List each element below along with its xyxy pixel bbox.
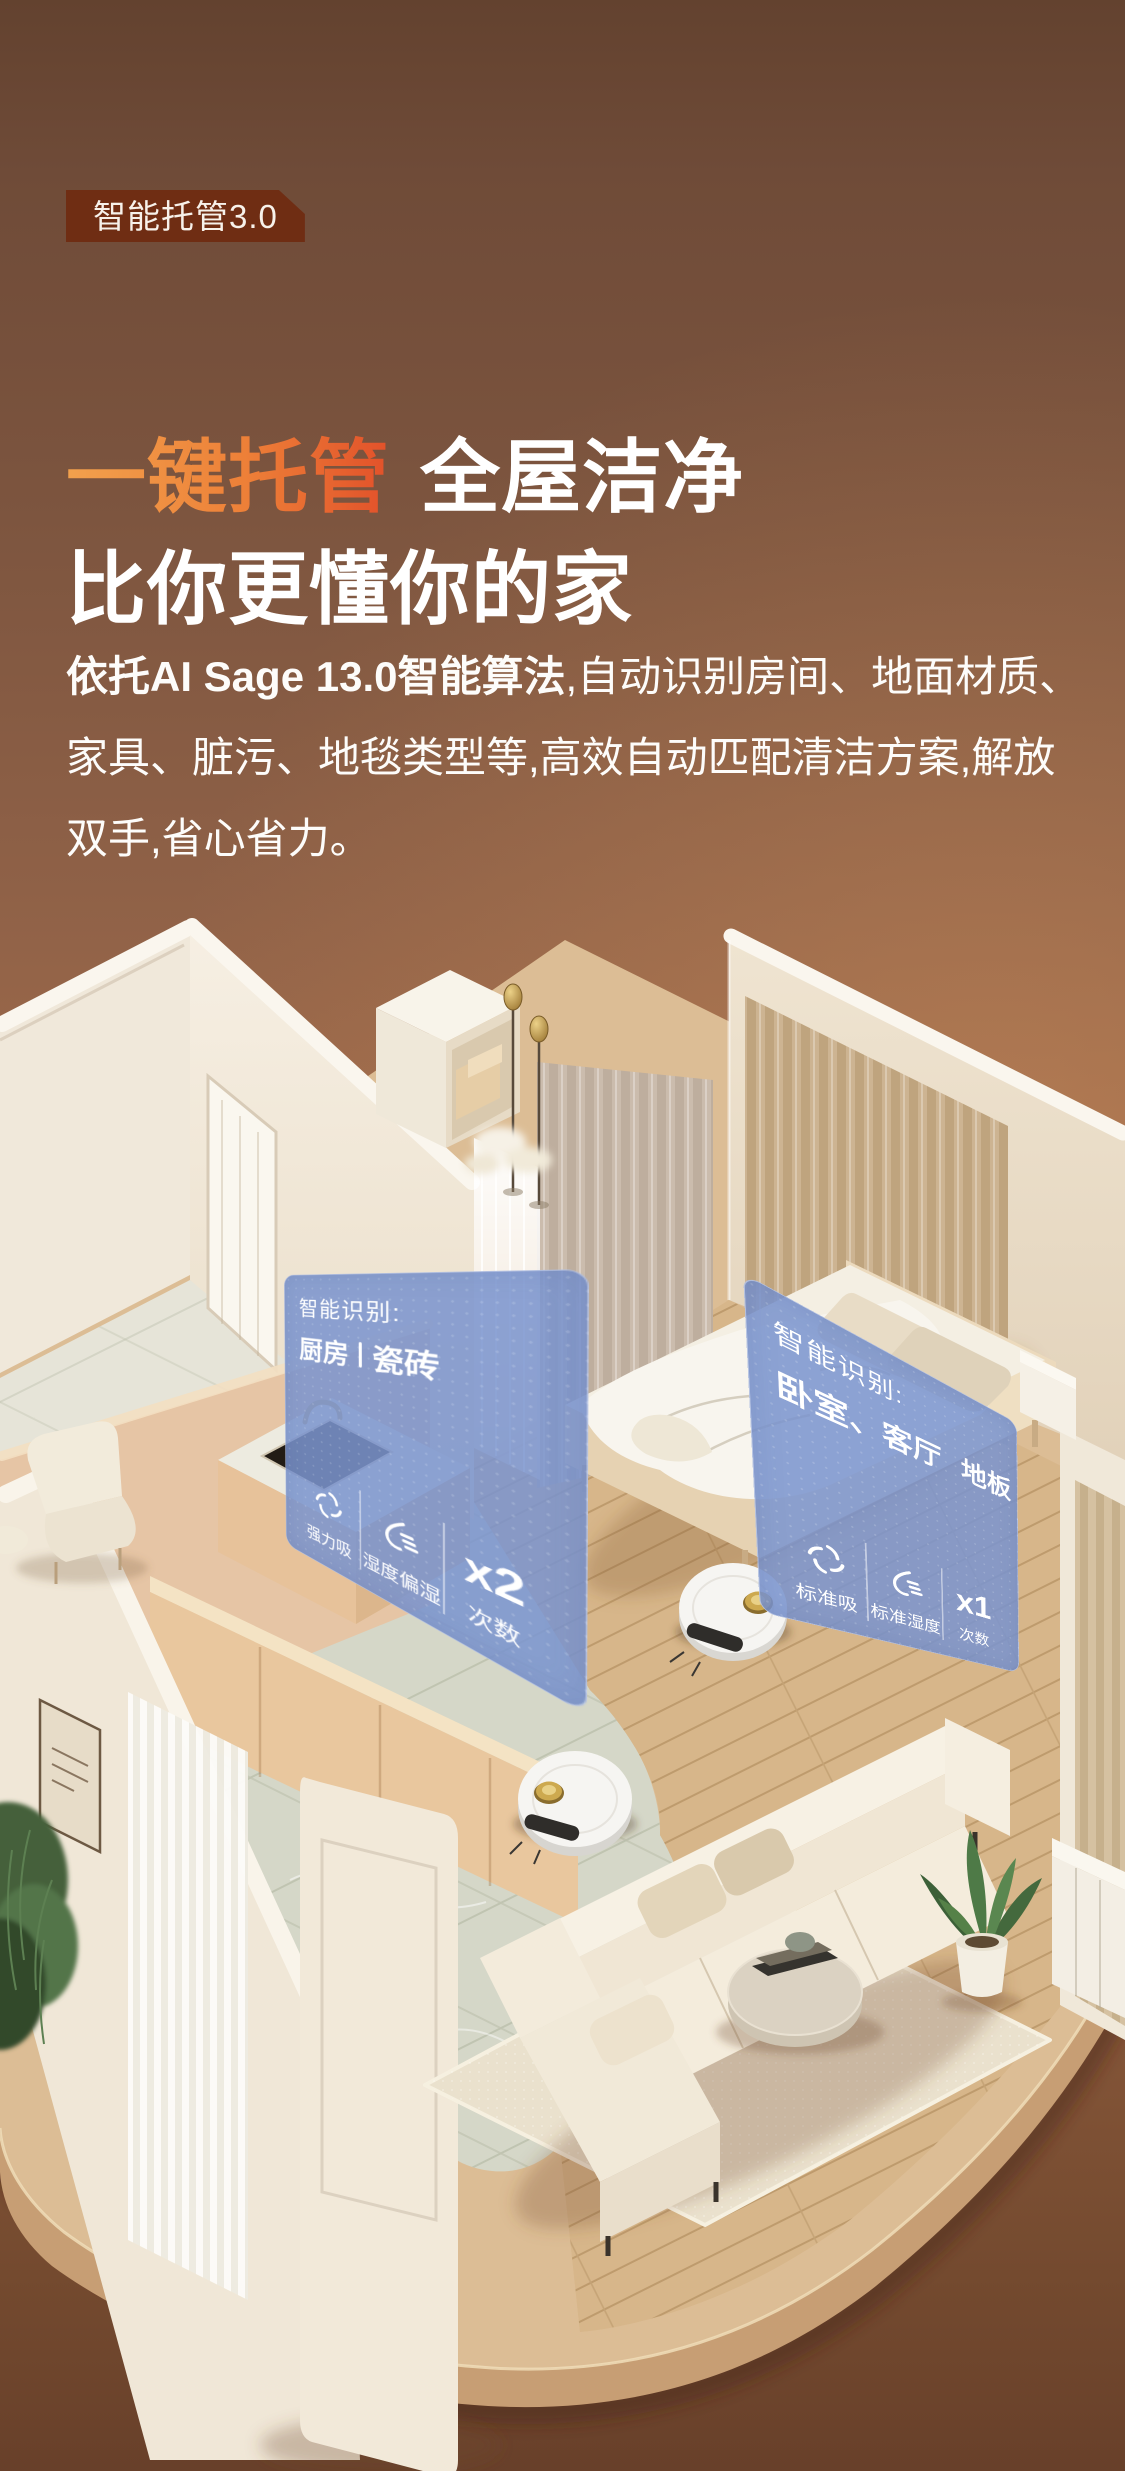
item-label: 次数: [959, 1622, 989, 1651]
version-badge: 智能托管3.0: [66, 190, 305, 242]
description-line1: 依托AI Sage 13.0智能算法,自动识别房间、地面材质、: [66, 636, 1081, 717]
count-value: x1: [956, 1584, 992, 1624]
card-floor: 瓷砖: [372, 1336, 439, 1389]
item-label: 强力吸: [307, 1518, 352, 1563]
item-label: 标准吸: [795, 1576, 858, 1617]
headline: 一键托管全屋洁净 比你更懂你的家: [66, 422, 744, 646]
promo-page: 智能托管3.0 一键托管全屋洁净 比你更懂你的家 依托AI Sage 13.0智…: [0, 0, 1125, 2471]
headline-rest: 全屋洁净: [420, 433, 744, 522]
headline-line2: 比你更懂你的家: [66, 534, 744, 646]
description-line2: 家具、脏污、地毯类型等,高效自动匹配清洁方案,解放: [66, 717, 1081, 798]
fan-suction-icon: [803, 1534, 848, 1583]
wall-niche-shelf: [376, 970, 520, 1148]
card-floor: 地板: [961, 1448, 1012, 1507]
headline-line1: 一键托管全屋洁净: [66, 422, 744, 534]
table-decor: [785, 1932, 815, 1952]
description-line3: 双手,省心省力。: [66, 798, 1081, 879]
badge-label: 智能托管3.0: [93, 198, 278, 235]
card-room: 厨房: [299, 1329, 349, 1373]
suction-item: 标准吸: [781, 1515, 867, 1621]
item-label: 标准湿度: [870, 1597, 941, 1638]
card-subtitle: 厨房 瓷砖: [299, 1329, 551, 1408]
left-white-curtain: [128, 1692, 248, 2300]
suction-item: 强力吸: [300, 1467, 360, 1569]
divider-bar: [359, 1342, 362, 1368]
headline-highlight: 一键托管: [66, 433, 390, 522]
description-lead: 依托AI Sage 13.0智能算法: [66, 653, 565, 700]
humidity-item: 标准湿度: [865, 1543, 943, 1640]
humidity-drop-icon: [887, 1561, 925, 1605]
description-line1-rest: ,自动识别房间、地面材质、: [565, 653, 1081, 700]
description: 依托AI Sage 13.0智能算法,自动识别房间、地面材质、 家具、脏污、地毯…: [66, 636, 1081, 879]
count-item: x1 次数: [941, 1568, 1003, 1655]
fan-suction-icon: [313, 1483, 344, 1529]
